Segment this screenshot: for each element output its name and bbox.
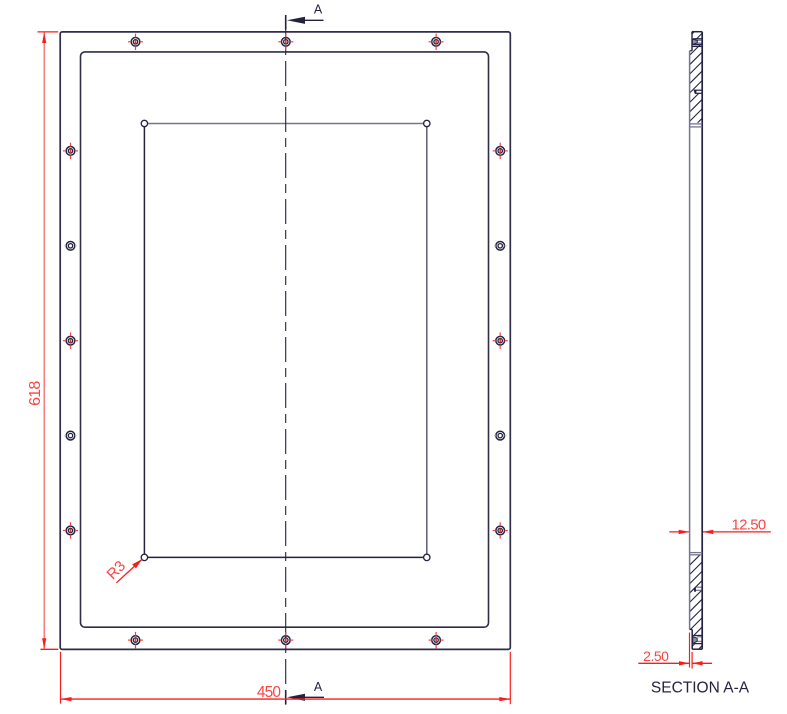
svg-text:2.50: 2.50 [643, 648, 669, 664]
svg-text:12.50: 12.50 [731, 516, 765, 533]
svg-text:A: A [314, 680, 323, 694]
svg-text:618: 618 [27, 381, 44, 406]
svg-text:SECTION A-A: SECTION A-A [651, 679, 750, 696]
svg-text:R3: R3 [104, 558, 130, 584]
svg-text:450: 450 [257, 684, 281, 701]
svg-text:A: A [314, 2, 323, 16]
